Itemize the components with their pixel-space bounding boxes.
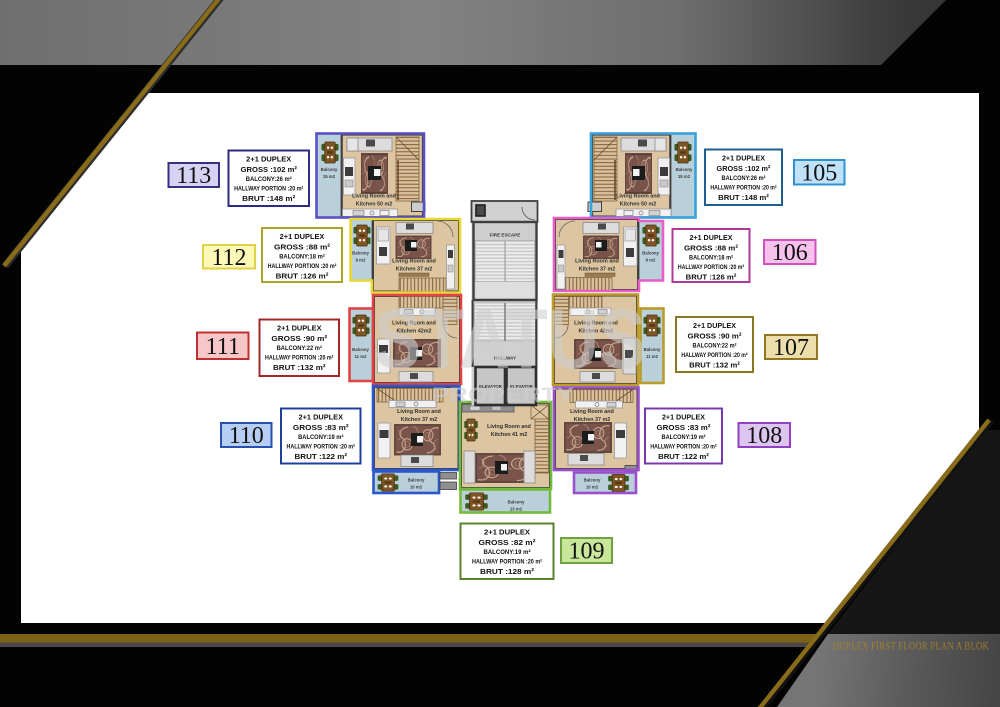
- svg-text:111: 111: [206, 334, 240, 360]
- svg-text:110: 110: [229, 423, 264, 449]
- svg-text:BRUT :126 m²: BRUT :126 m²: [276, 272, 329, 281]
- svg-text:BRUT :122 m²: BRUT :122 m²: [295, 452, 348, 461]
- svg-text:BRUT :128 m²: BRUT :128 m²: [480, 567, 535, 576]
- svg-text:HALLWAY PORTION :20 m²: HALLWAY PORTION :20 m²: [265, 355, 333, 362]
- svg-text:GROSS :88 m²: GROSS :88 m²: [684, 244, 738, 253]
- svg-text:Kitchen 50 m2: Kitchen 50 m2: [620, 202, 657, 208]
- svg-text:Kitchen 41 m2: Kitchen 41 m2: [491, 432, 528, 438]
- svg-text:109: 109: [569, 539, 605, 565]
- svg-text:GROSS :83 m²: GROSS :83 m²: [657, 423, 711, 432]
- svg-text:9 m2: 9 m2: [646, 258, 656, 263]
- svg-text:BRUT :132 m²: BRUT :132 m²: [273, 363, 326, 372]
- svg-text:BALCONY:19 m²: BALCONY:19 m²: [298, 434, 343, 441]
- svg-text:Balcony: Balcony: [321, 167, 338, 172]
- svg-text:HALLWAY PORTION :20 m²: HALLWAY PORTION :20 m²: [681, 352, 747, 359]
- svg-text:Kitchen 37 m2: Kitchen 37 m2: [579, 267, 616, 273]
- svg-text:HALLWAY PORTION :20 m²: HALLWAY PORTION :20 m²: [472, 559, 542, 566]
- svg-text:106: 106: [772, 240, 808, 266]
- svg-text:Balcony: Balcony: [642, 251, 659, 256]
- svg-text:HALLWAY PORTION :20 m²: HALLWAY PORTION :20 m²: [678, 264, 744, 271]
- svg-text:BRUT :126 m²: BRUT :126 m²: [686, 273, 737, 282]
- svg-text:PROPERTY: PROPERTY: [432, 384, 574, 407]
- svg-text:Kitchen 37 m2: Kitchen 37 m2: [396, 267, 433, 273]
- svg-text:Living Room and: Living Room and: [575, 259, 619, 265]
- svg-text:Living Room and: Living Room and: [487, 424, 531, 430]
- svg-text:10 m2: 10 m2: [410, 485, 423, 490]
- svg-text:2+1 DUPLEX: 2+1 DUPLEX: [662, 413, 705, 422]
- svg-text:Balcony: Balcony: [584, 478, 601, 483]
- svg-text:Kitchen 37 m2: Kitchen 37 m2: [574, 417, 611, 423]
- svg-text:BALCONY:19 m²: BALCONY:19 m²: [662, 434, 706, 441]
- svg-text:105: 105: [801, 160, 837, 186]
- svg-text:2+1 DUPLEX: 2+1 DUPLEX: [246, 155, 291, 164]
- svg-text:HALLWAY PORTION :20 m²: HALLWAY PORTION :20 m²: [650, 444, 716, 451]
- svg-text:2+1 DUPLEX: 2+1 DUPLEX: [299, 413, 344, 422]
- svg-text:Living Room and: Living Room and: [397, 409, 441, 415]
- svg-text:11 m2: 11 m2: [646, 354, 659, 359]
- svg-text:Balcony: Balcony: [676, 167, 693, 172]
- svg-text:9 m2: 9 m2: [356, 258, 366, 263]
- svg-text:BALCONY:22 m²: BALCONY:22 m²: [277, 345, 322, 352]
- svg-text:2+1 DUPLEX: 2+1 DUPLEX: [280, 232, 325, 241]
- svg-text:Living Room and: Living Room and: [570, 409, 614, 415]
- svg-text:11 m2: 11 m2: [355, 354, 368, 359]
- svg-text:BALCONY:18 m²: BALCONY:18 m²: [689, 255, 733, 262]
- svg-text:BALCONY:26 m²: BALCONY:26 m²: [246, 176, 292, 183]
- svg-text:Balcony: Balcony: [352, 251, 369, 256]
- svg-text:2+1 DUPLEX: 2+1 DUPLEX: [277, 324, 322, 333]
- svg-text:Balcony: Balcony: [408, 478, 425, 483]
- svg-text:GROSS :82 m²: GROSS :82 m²: [479, 538, 537, 547]
- svg-text:BRUT :148 m²: BRUT :148 m²: [718, 193, 769, 202]
- svg-text:10 m2: 10 m2: [586, 485, 599, 490]
- svg-text:Kitchen 50 m2: Kitchen 50 m2: [356, 202, 393, 208]
- svg-text:2+1 DUPLEX: 2+1 DUPLEX: [689, 233, 732, 242]
- svg-text:112: 112: [211, 245, 246, 271]
- svg-text:108: 108: [746, 423, 782, 449]
- svg-text:113: 113: [176, 163, 211, 189]
- svg-text:Balcony: Balcony: [508, 500, 525, 505]
- svg-text:GROSS :102 m²: GROSS :102 m²: [717, 164, 771, 173]
- svg-text:BRUT :132 m²: BRUT :132 m²: [689, 361, 740, 370]
- svg-text:2+1 DUPLEX: 2+1 DUPLEX: [693, 321, 736, 330]
- svg-text:GROSS :88 m²: GROSS :88 m²: [274, 243, 331, 252]
- svg-text:BALCONY:26 m²: BALCONY:26 m²: [722, 175, 766, 182]
- svg-text:Balcony: Balcony: [644, 347, 661, 352]
- svg-text:BRUT :122 m²: BRUT :122 m²: [658, 452, 709, 461]
- svg-text:FIRE ESCAPE: FIRE ESCAPE: [490, 233, 521, 238]
- svg-text:Kitchen 37 m2: Kitchen 37 m2: [401, 417, 438, 423]
- svg-text:GROSS :83 m²: GROSS :83 m²: [293, 423, 349, 432]
- svg-text:Living Room and: Living Room and: [352, 194, 396, 200]
- svg-text:GROSS :90 m²: GROSS :90 m²: [688, 332, 742, 341]
- svg-text:2+1 DUPLEX: 2+1 DUPLEX: [722, 154, 765, 163]
- svg-text:13 m2: 13 m2: [510, 507, 523, 512]
- svg-text:DUPLEX FİRST FLOOR PLAN A BLO: DUPLEX FİRST FLOOR PLAN A BLOK: [833, 641, 989, 653]
- svg-text:HALLWAY PORTION :20 m²: HALLWAY PORTION :20 m²: [287, 444, 355, 451]
- svg-text:107: 107: [773, 335, 809, 361]
- svg-text:15 m2: 15 m2: [323, 174, 336, 179]
- svg-text:2+1 DUPLEX: 2+1 DUPLEX: [484, 528, 530, 537]
- svg-text:BALCONY:22 m²: BALCONY:22 m²: [693, 343, 737, 350]
- svg-text:BALCONY:18 m²: BALCONY:18 m²: [279, 254, 325, 261]
- svg-text:BRUT :148 m²: BRUT :148 m²: [242, 194, 296, 203]
- svg-text:BALCONY:19 m²: BALCONY:19 m²: [484, 549, 531, 556]
- svg-text:HALLWAY PORTION :20 m²: HALLWAY PORTION :20 m²: [234, 186, 303, 193]
- svg-text:HALLWAY PORTION :20 m²: HALLWAY PORTION :20 m²: [268, 263, 337, 270]
- svg-text:Living Room and: Living Room and: [616, 194, 660, 200]
- svg-text:GROSS :90 m²: GROSS :90 m²: [271, 334, 327, 343]
- svg-text:Balcony: Balcony: [352, 347, 369, 352]
- svg-text:15 m2: 15 m2: [678, 174, 691, 179]
- svg-text:HALLWAY PORTION :20 m²: HALLWAY PORTION :20 m²: [710, 185, 776, 192]
- svg-text:GROSS :102 m²: GROSS :102 m²: [241, 165, 298, 174]
- svg-text:STATUS: STATUS: [374, 292, 646, 386]
- svg-text:Living Room and: Living Room and: [392, 259, 436, 265]
